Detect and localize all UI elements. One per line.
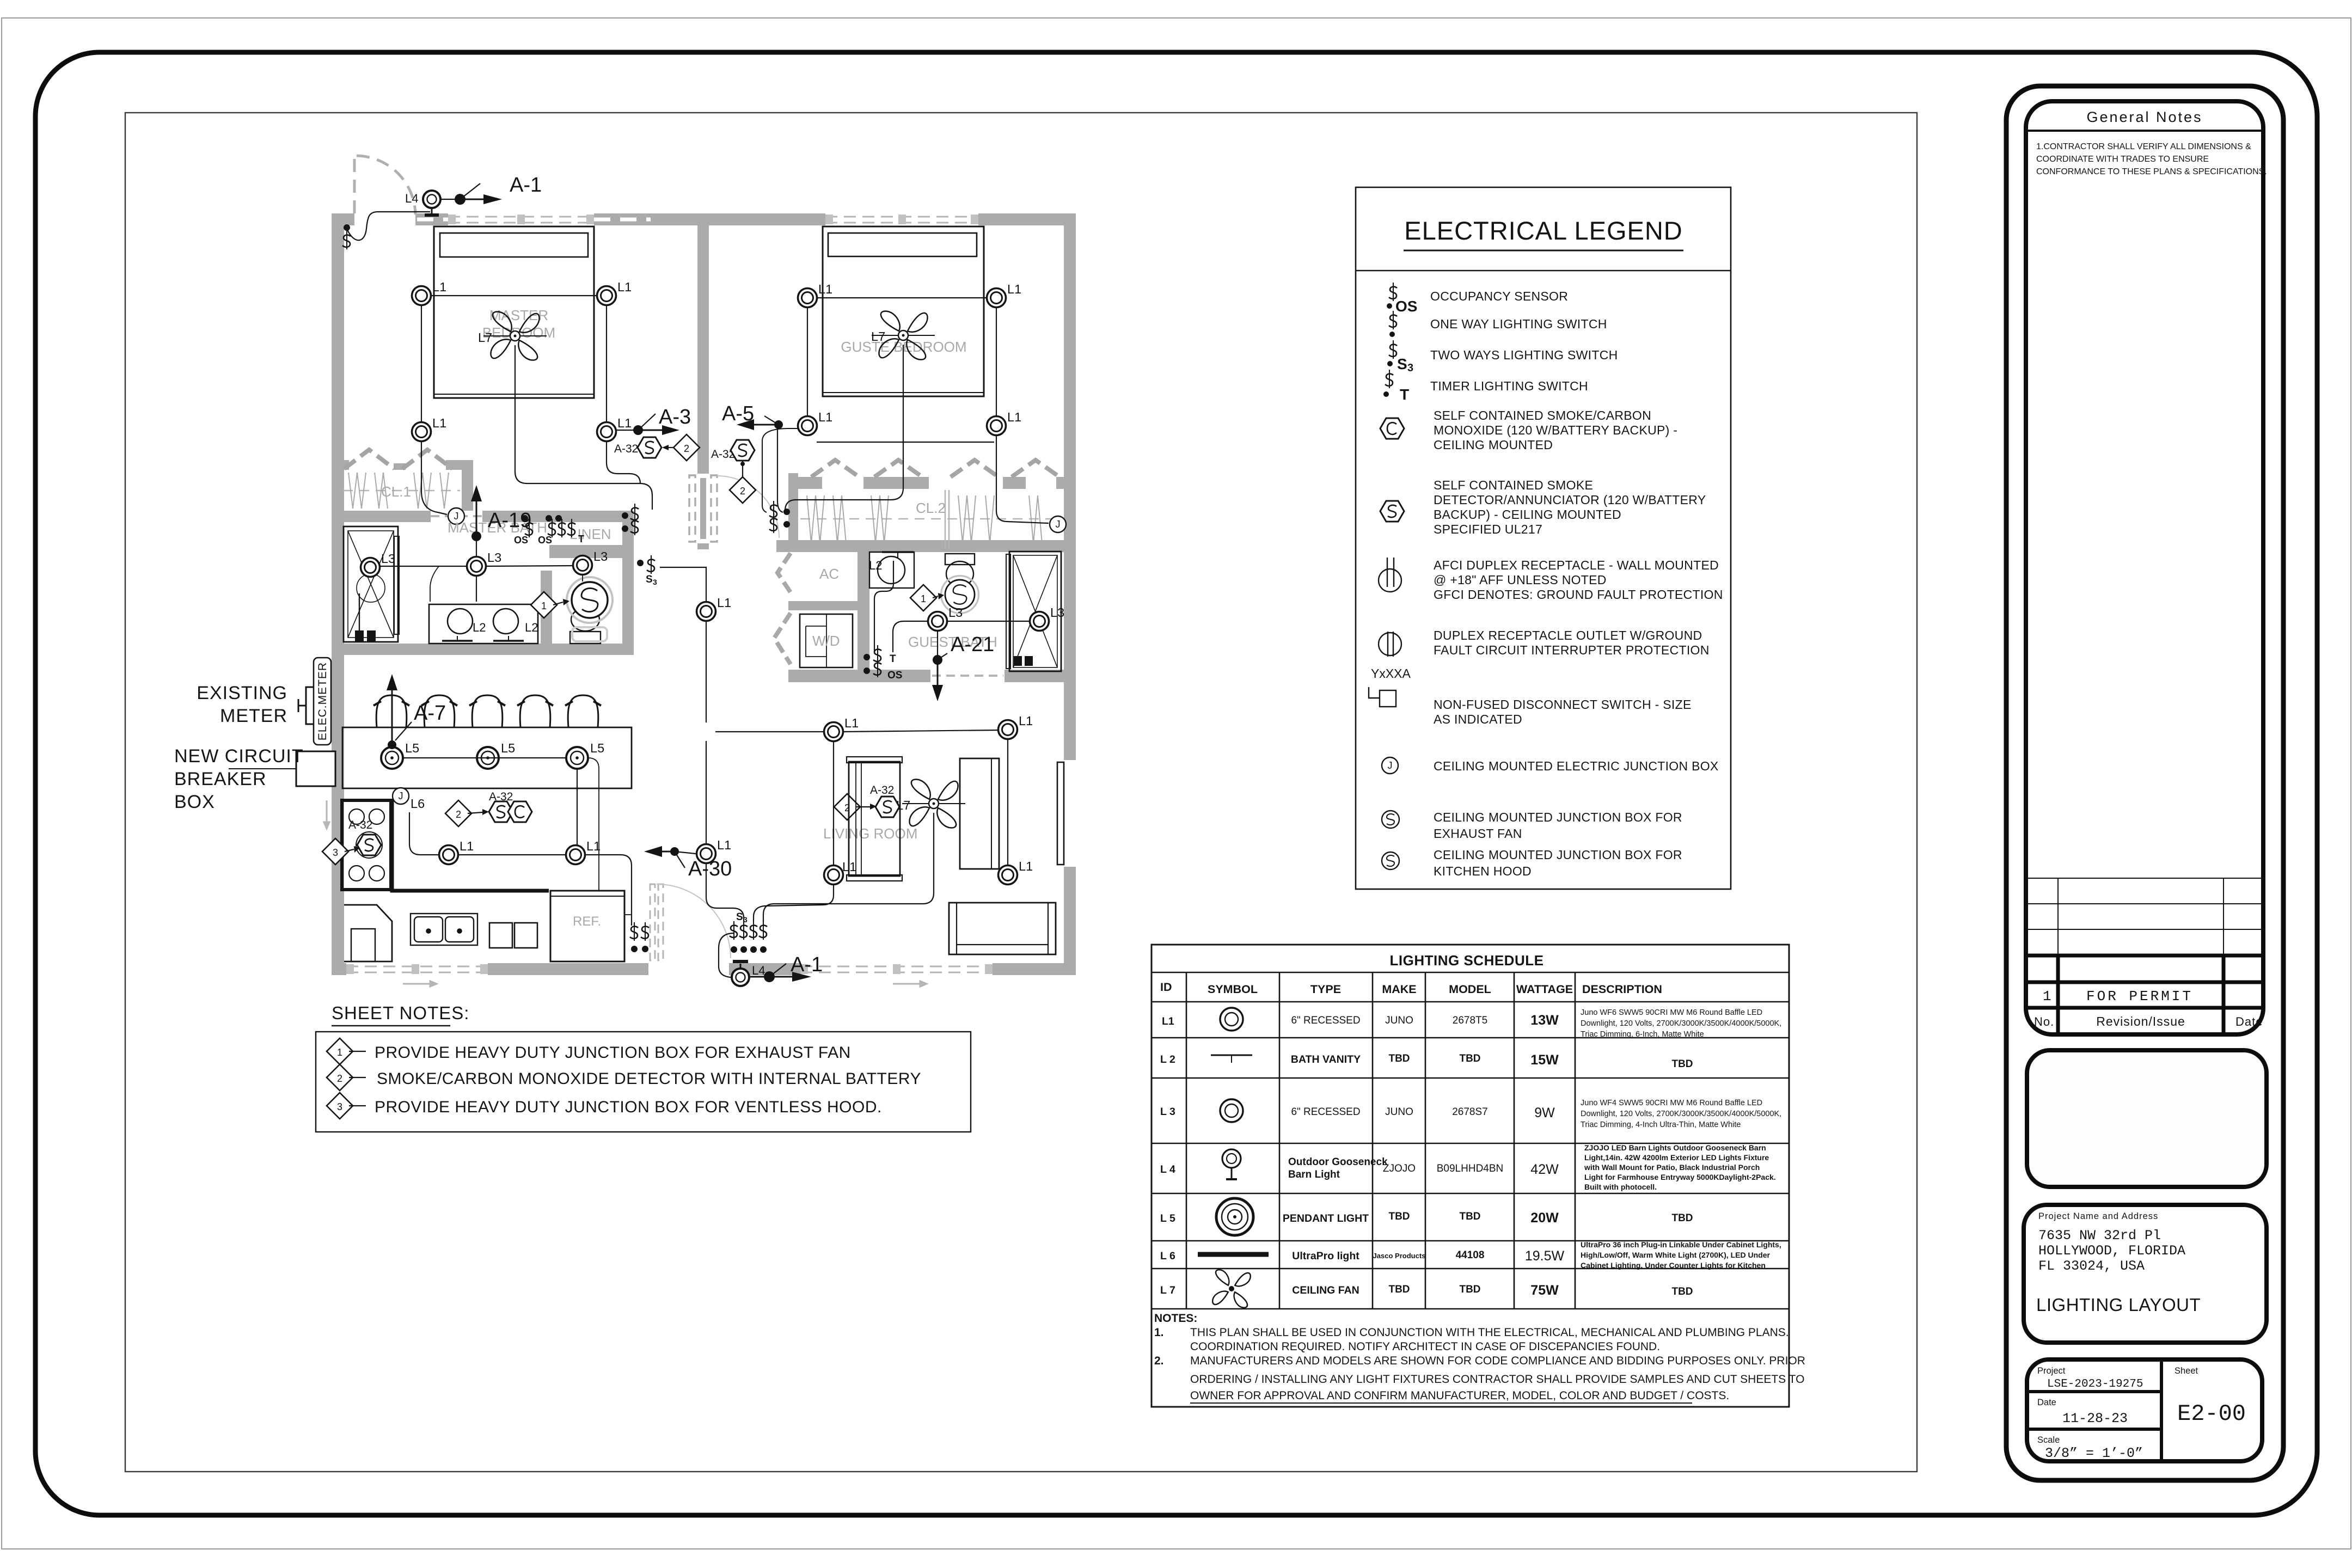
svg-text:CEILING FAN: CEILING FAN [1292, 1284, 1359, 1296]
svg-text:SMOKE/CARBON MONOXIDE DETECTOR: SMOKE/CARBON MONOXIDE DETECTOR WITH INTE… [377, 1070, 921, 1088]
svg-text:L3: L3 [381, 552, 395, 566]
svg-text:6" RECESSED: 6" RECESSED [1291, 1015, 1360, 1026]
svg-text:JUNO: JUNO [1385, 1015, 1413, 1026]
svg-text:ZJOJO LED Barn Lights Outdoor: ZJOJO LED Barn Lights Outdoor Gooseneck … [1584, 1143, 1766, 1152]
svg-text:High/Low/Off, Warm White Light: High/Low/Off, Warm White Light (2700K), … [1581, 1251, 1770, 1259]
svg-text:BACKUP) - CEILING MOUNTED: BACKUP) - CEILING MOUNTED [1434, 507, 1621, 522]
svg-text:JUNO: JUNO [1385, 1106, 1413, 1118]
svg-text:SYMBOL: SYMBOL [1208, 983, 1258, 996]
svg-text:LINEN: LINEN [569, 526, 611, 542]
svg-text:LIGHTING SCHEDULE: LIGHTING SCHEDULE [1390, 952, 1544, 969]
svg-text:L 4: L 4 [1160, 1163, 1175, 1175]
svg-text:L6: L6 [411, 797, 425, 811]
svg-text:7635 NW 32rd Pl: 7635 NW 32rd Pl [2038, 1228, 2161, 1244]
svg-text:TBD: TBD [1459, 1284, 1480, 1295]
svg-text:L 7: L 7 [1160, 1284, 1175, 1296]
svg-text:3: 3 [653, 578, 657, 586]
svg-text:OWNER FOR APPROVAL AND CONFIRM: OWNER FOR APPROVAL AND CONFIRM MANUFACTU… [1190, 1389, 1729, 1402]
svg-text:REF.: REF. [573, 914, 601, 929]
svg-text:Jasco Products: Jasco Products [1373, 1252, 1426, 1260]
svg-text:15W: 15W [1530, 1052, 1559, 1068]
svg-text:TWO WAYS LIGHTING SWITCH: TWO WAYS LIGHTING SWITCH [1430, 348, 1618, 362]
svg-text:19.5W: 19.5W [1525, 1248, 1565, 1264]
svg-text:42W: 42W [1530, 1162, 1559, 1177]
svg-text:L2: L2 [525, 621, 538, 634]
svg-text:TBD: TBD [1459, 1211, 1480, 1222]
svg-text:1: 1 [2043, 988, 2051, 1004]
svg-text:MONOXIDE (120 W/BATTERY BACKUP: MONOXIDE (120 W/BATTERY BACKUP) - [1434, 423, 1677, 437]
svg-text:No.: No. [2034, 1015, 2054, 1028]
svg-text:HOLLYWOOD, FLORIDA: HOLLYWOOD, FLORIDA [2038, 1243, 2185, 1259]
svg-text:L5: L5 [405, 741, 419, 755]
svg-text:NON-FUSED DISCONNECT SWITCH -: NON-FUSED DISCONNECT SWITCH - SIZE [1434, 697, 1692, 712]
svg-text:MODEL: MODEL [1449, 983, 1491, 996]
svg-text:A-32: A-32 [870, 784, 894, 797]
svg-text:AC: AC [819, 566, 839, 582]
svg-text:2: 2 [684, 443, 689, 454]
svg-text:BOX: BOX [174, 792, 215, 812]
svg-text:FOR PERMIT: FOR PERMIT [2086, 988, 2193, 1004]
svg-text:TBD: TBD [1388, 1211, 1410, 1222]
svg-text:TIMER LIGHTING SWITCH: TIMER LIGHTING SWITCH [1430, 379, 1588, 393]
svg-text:L1: L1 [1007, 282, 1021, 296]
svg-text:L 5: L 5 [1160, 1212, 1175, 1224]
svg-text:OCCUPANCY SENSOR: OCCUPANCY SENSOR [1430, 289, 1568, 303]
svg-text:L1: L1 [844, 716, 859, 730]
svg-text:WATTAGE: WATTAGE [1516, 983, 1573, 996]
svg-text:LSE-2023-19275: LSE-2023-19275 [2047, 1378, 2143, 1391]
svg-text:NOTES:: NOTES: [1154, 1312, 1197, 1325]
svg-text:44108: 44108 [1456, 1249, 1485, 1261]
svg-text:Downlight, 120 Volts, 2700K/30: Downlight, 120 Volts, 2700K/3000K/3500K/… [1581, 1110, 1781, 1118]
svg-text:3: 3 [1407, 362, 1413, 374]
svg-text:CEILING MOUNTED ELECTRIC JUNCT: CEILING MOUNTED ELECTRIC JUNCTION BOX [1434, 759, 1719, 773]
svg-text:DESCRIPTION: DESCRIPTION [1582, 983, 1662, 996]
svg-text:L4: L4 [752, 964, 765, 977]
svg-text:Juno WF4 SWW5 90CRI MW M6 Roun: Juno WF4 SWW5 90CRI MW M6 Round Baffle L… [1581, 1099, 1762, 1107]
svg-text:CONFORMANCE TO THESE PLANS: CONFORMANCE TO THESE PLANS & SPECIFICATI… [2036, 167, 2267, 176]
svg-text:S: S [1397, 356, 1407, 372]
svg-text:ONE WAY LIGHTING SWITCH: ONE WAY LIGHTING SWITCH [1430, 317, 1607, 331]
svg-text:CEILING MOUNTED: CEILING MOUNTED [1434, 438, 1553, 452]
svg-text:Project Name and Address: Project Name and Address [2038, 1211, 2158, 1221]
svg-text:S: S [646, 574, 653, 585]
svg-text:Cabinet Lighting, Under Counte: Cabinet Lighting, Under Counter Lights f… [1581, 1261, 1766, 1270]
svg-text:MANUFACTURERS AND MODELS ARE S: MANUFACTURERS AND MODELS ARE SHOWN FOR C… [1190, 1355, 1805, 1367]
svg-text:L3: L3 [1050, 605, 1064, 620]
svg-text:2.: 2. [1154, 1355, 1164, 1367]
svg-text:1: 1 [337, 1047, 342, 1058]
svg-text:CEILING MOUNTED JUNCTION BOX F: CEILING MOUNTED JUNCTION BOX FOR [1434, 810, 1682, 824]
svg-text:2: 2 [456, 809, 461, 820]
svg-text:L3: L3 [487, 550, 501, 565]
svg-text:CL.2: CL.2 [916, 500, 946, 516]
svg-text:AS INDICATED: AS INDICATED [1434, 712, 1522, 726]
svg-text:Downlight, 120 Volts, 2700K/30: Downlight, 120 Volts, 2700K/3000K/3500K/… [1581, 1019, 1781, 1028]
svg-text:MAKE: MAKE [1382, 983, 1416, 996]
svg-text:L1: L1 [617, 416, 632, 430]
svg-text:W/D: W/D [812, 633, 840, 649]
svg-text:ORDERING / INSTALLING ANY LIGH: ORDERING / INSTALLING ANY LIGHT FIXTURES… [1190, 1373, 1804, 1386]
svg-text:9W: 9W [1534, 1105, 1555, 1120]
svg-text:T: T [890, 653, 896, 665]
svg-text:COORDINATE WITH TRADES TO: COORDINATE WITH TRADES TO ENSURE [2036, 155, 2209, 164]
svg-text:PROVIDE HEAVY DUTY JUNCTION BO: PROVIDE HEAVY DUTY JUNCTION BOX FOR EXHA… [375, 1044, 851, 1062]
svg-text:OS: OS [538, 535, 552, 546]
svg-text:20W: 20W [1530, 1210, 1559, 1226]
svg-text:T: T [578, 534, 584, 544]
svg-text:Triac Dimming, 4-Inch Ultra-Th: Triac Dimming, 4-Inch Ultra-Thin, Matte … [1581, 1120, 1741, 1129]
svg-text:L5: L5 [501, 741, 515, 755]
svg-text:with Wall Mount for Patio, Bla: with Wall Mount for Patio, Black Industr… [1584, 1163, 1760, 1172]
svg-text:COORDINATION REQUIRED. NOTIFY: COORDINATION REQUIRED. NOTIFY ARCHITECT … [1190, 1340, 1660, 1353]
svg-text:Barn Light: Barn Light [1288, 1169, 1340, 1180]
svg-text:SELF CONTAINED SMOKE/CARBON: SELF CONTAINED SMOKE/CARBON [1434, 408, 1651, 422]
svg-text:L1: L1 [818, 410, 832, 424]
svg-text:FL 33024, USA: FL 33024, USA [2038, 1258, 2145, 1274]
svg-text:L4: L4 [405, 192, 418, 205]
svg-text:PENDANT LIGHT: PENDANT LIGHT [1283, 1212, 1369, 1224]
svg-text:OS: OS [514, 535, 528, 546]
svg-text:A-19: A-19 [488, 509, 531, 532]
svg-text:L1: L1 [586, 839, 601, 853]
svg-text:BATH VANITY: BATH VANITY [1291, 1053, 1361, 1065]
svg-text:T: T [1400, 386, 1409, 403]
svg-text:L3: L3 [948, 605, 963, 620]
svg-text:13W: 13W [1530, 1013, 1559, 1028]
svg-text:L 2: L 2 [1160, 1053, 1175, 1065]
svg-text:75W: 75W [1530, 1283, 1559, 1298]
svg-text:UltraPro 36 inch Plug-in Linka: UltraPro 36 inch Plug-in Linkable Under … [1581, 1240, 1781, 1249]
svg-text:OS: OS [1395, 298, 1417, 315]
svg-text:S: S [736, 911, 743, 923]
svg-text:Date: Date [2235, 1015, 2263, 1028]
svg-text:L1: L1 [432, 280, 446, 294]
svg-text:TBD: TBD [1671, 1058, 1693, 1070]
svg-text:Light,14in. 42W 4200lm Exterio: Light,14in. 42W 4200lm Exterior LED Ligh… [1584, 1153, 1769, 1162]
svg-text:A-21: A-21 [951, 633, 994, 656]
svg-text:1: 1 [541, 601, 547, 611]
svg-text:BREAKER: BREAKER [174, 769, 267, 789]
svg-text:LIVING ROOM: LIVING ROOM [823, 825, 917, 842]
svg-text:3/8” = 1’-0”: 3/8” = 1’-0” [2045, 1445, 2143, 1461]
svg-text:TBD: TBD [1671, 1286, 1693, 1297]
svg-text:A-32: A-32 [348, 819, 372, 831]
svg-text:1.: 1. [1154, 1326, 1164, 1339]
svg-text:L1: L1 [1019, 714, 1033, 728]
svg-text:EXHAUST FAN: EXHAUST FAN [1434, 826, 1522, 841]
svg-text:L1: L1 [617, 280, 632, 294]
svg-text:L1: L1 [432, 416, 446, 430]
svg-text:L1: L1 [717, 596, 731, 610]
svg-text:Project: Project [2037, 1366, 2066, 1376]
svg-text:L3: L3 [593, 549, 608, 563]
svg-text:Juno WF6 SWW5 90CRI MW M6 Roun: Juno WF6 SWW5 90CRI MW M6 Round Baffle L… [1581, 1008, 1762, 1017]
svg-text:DETECTOR/ANNUNCIATOR (120 W/BA: DETECTOR/ANNUNCIATOR (120 W/BATTERY [1434, 493, 1706, 507]
svg-text:Triac Dimming, 6-Inch, Matte W: Triac Dimming, 6-Inch, Matte White [1581, 1030, 1704, 1039]
svg-text:Sheet: Sheet [2175, 1366, 2198, 1376]
svg-text:E2-00: E2-00 [2177, 1401, 2246, 1427]
svg-text:Revision/Issue: Revision/Issue [2096, 1014, 2185, 1028]
svg-text:CEILING MOUNTED JUNCTION BOX F: CEILING MOUNTED JUNCTION BOX FOR [1434, 848, 1682, 862]
svg-text:FAULT CIRCUIT INTERRUPTER PROT: FAULT CIRCUIT INTERRUPTER PROTECTION [1434, 643, 1710, 657]
svg-text:2: 2 [740, 486, 745, 497]
svg-text:ELEC.METER: ELEC.METER [316, 662, 329, 740]
svg-text:L7: L7 [871, 329, 885, 344]
svg-text:SELF CONTAINED SMOKE: SELF CONTAINED SMOKE [1434, 478, 1593, 492]
svg-text:3: 3 [333, 847, 338, 858]
svg-text:ZJOJO: ZJOJO [1383, 1163, 1416, 1174]
svg-text:YxXXA: YxXXA [1371, 666, 1411, 681]
svg-text:TYPE: TYPE [1310, 983, 1341, 996]
svg-text:L 6: L 6 [1160, 1250, 1175, 1262]
svg-text:L 3: L 3 [1160, 1106, 1175, 1118]
svg-text:ELECTRICAL LEGEND: ELECTRICAL LEGEND [1404, 216, 1683, 245]
svg-text:L7: L7 [478, 330, 492, 345]
svg-text:1: 1 [921, 593, 926, 604]
svg-text:SHEET NOTES:: SHEET NOTES: [332, 1003, 469, 1023]
svg-text:OS: OS [887, 670, 902, 681]
svg-text:SPECIFIED UL217: SPECIFIED UL217 [1434, 522, 1542, 536]
svg-text:CL.1: CL.1 [381, 483, 411, 500]
svg-text:L1: L1 [1007, 410, 1021, 424]
svg-text:DUPLEX RECEPTACLE OUTLET W/GRO: DUPLEX RECEPTACLE OUTLET W/GROUND [1434, 628, 1702, 642]
svg-text:L1: L1 [1019, 859, 1033, 873]
svg-text:General Notes: General Notes [2086, 109, 2202, 125]
svg-text:THIS PLAN SHALL BE USED IN CON: THIS PLAN SHALL BE USED IN CONJUNCTION W… [1190, 1326, 1789, 1339]
svg-text:UltraPro light: UltraPro light [1292, 1250, 1359, 1262]
svg-text:Scale: Scale [2037, 1435, 2060, 1445]
svg-text:TBD: TBD [1459, 1053, 1480, 1064]
svg-text:METER: METER [220, 706, 287, 726]
svg-text:@ +18" AFF UNLESS NOTED: @ +18" AFF UNLESS NOTED [1434, 573, 1607, 587]
svg-text:Built with photocell.: Built with photocell. [1584, 1183, 1657, 1191]
svg-text:L1: L1 [460, 839, 474, 853]
svg-text:Outdoor Gooseneck: Outdoor Gooseneck [1288, 1156, 1388, 1168]
svg-text:A-1: A-1 [510, 174, 542, 197]
svg-text:GFCI DENOTES: GROUND FAULT PRO: GFCI DENOTES: GROUND FAULT PROTECTION [1434, 587, 1723, 602]
svg-text:2678S7: 2678S7 [1452, 1106, 1488, 1118]
svg-text:EXISTING: EXISTING [197, 683, 287, 703]
svg-text:L2: L2 [473, 621, 486, 634]
svg-text:TBD: TBD [1671, 1212, 1693, 1224]
svg-text:TBD: TBD [1388, 1284, 1410, 1295]
svg-text:Date: Date [2037, 1398, 2056, 1407]
svg-text:L1: L1 [717, 838, 731, 852]
svg-text:A-32: A-32 [614, 443, 638, 455]
svg-text:2678T5: 2678T5 [1453, 1015, 1487, 1026]
svg-text:KITCHEN HOOD: KITCHEN HOOD [1434, 864, 1532, 878]
svg-text:L2: L2 [869, 559, 882, 572]
svg-text:Light for Farmhouse Entryway 5: Light for Farmhouse Entryway 5000KDaylig… [1584, 1173, 1776, 1181]
svg-text:AFCI DUPLEX RECEPTACLE - WALL: AFCI DUPLEX RECEPTACLE - WALL MOUNTED [1434, 558, 1719, 572]
svg-text:B09LHHD4BN: B09LHHD4BN [1437, 1163, 1504, 1174]
svg-text:A-3: A-3 [659, 406, 691, 428]
svg-text:2: 2 [337, 1073, 342, 1084]
svg-text:ID: ID [1160, 981, 1172, 994]
svg-text:1.CONTRACTOR SHALL VERIFY A: 1.CONTRACTOR SHALL VERIFY ALL DIMENSIONS… [2036, 142, 2251, 151]
svg-text:6" RECESSED: 6" RECESSED [1291, 1106, 1360, 1118]
svg-text:LIGHTING LAYOUT: LIGHTING LAYOUT [2036, 1295, 2201, 1315]
svg-text:PROVIDE HEAVY DUTY JUNCTION BO: PROVIDE HEAVY DUTY JUNCTION BOX FOR VENT… [375, 1098, 882, 1116]
svg-text:TBD: TBD [1388, 1053, 1410, 1064]
svg-text:11-28-23: 11-28-23 [2062, 1411, 2128, 1426]
svg-text:L1: L1 [818, 282, 832, 296]
svg-text:3: 3 [337, 1101, 342, 1112]
svg-text:NEW CIRCUIT: NEW CIRCUIT [174, 746, 304, 767]
svg-text:L5: L5 [590, 741, 604, 755]
svg-text:A-7: A-7 [414, 702, 446, 725]
svg-text:L1: L1 [1162, 1015, 1174, 1027]
